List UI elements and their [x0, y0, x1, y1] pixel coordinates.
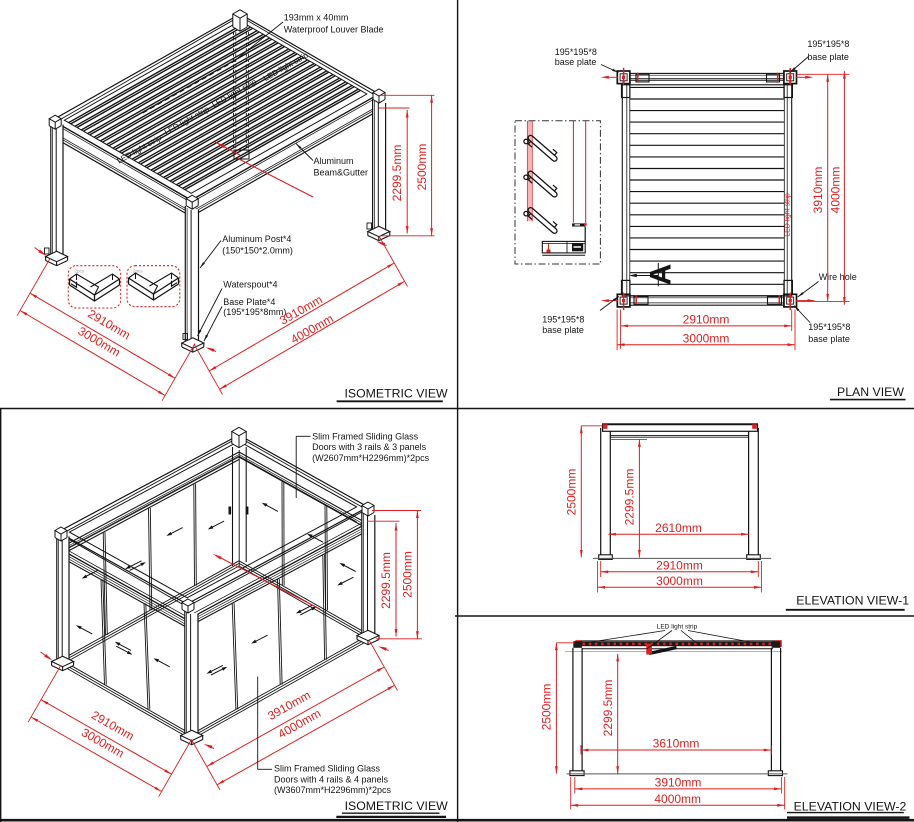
- svg-text:Waterproof Louver Blade: Waterproof Louver Blade: [284, 25, 384, 35]
- svg-text:2500mm: 2500mm: [401, 551, 415, 598]
- svg-text:2500mm: 2500mm: [540, 684, 554, 731]
- svg-text:2500mm: 2500mm: [565, 469, 579, 516]
- svg-text:Base Plate*4: Base Plate*4: [223, 297, 275, 307]
- svg-text:195*195*8: 195*195*8: [807, 39, 849, 49]
- svg-text:3000mm: 3000mm: [683, 332, 730, 346]
- svg-text:195*195*8: 195*195*8: [555, 47, 597, 57]
- svg-text:2pcs: 2pcs: [133, 269, 143, 274]
- svg-text:LED light strip: LED light strip: [784, 193, 791, 237]
- svg-text:3000mm: 3000mm: [656, 574, 703, 588]
- svg-text:3910mm: 3910mm: [811, 167, 825, 214]
- svg-text:(W3607mm*H2296mm)*2pcs: (W3607mm*H2296mm)*2pcs: [274, 785, 392, 795]
- svg-text:2500mm: 2500mm: [415, 144, 429, 191]
- svg-text:(150*150*2.0mm): (150*150*2.0mm): [222, 246, 293, 256]
- svg-text:Slim Framed Sliding Glass: Slim Framed Sliding Glass: [312, 432, 419, 442]
- svg-text:2299.5mm: 2299.5mm: [601, 680, 615, 737]
- svg-text:Doors with 4 rails & 4 panels: Doors with 4 rails & 4 panels: [274, 774, 389, 784]
- svg-text:195*195*8: 195*195*8: [808, 322, 850, 332]
- svg-text:193mm x 40mm: 193mm x 40mm: [284, 13, 349, 23]
- svg-text:2pcs: 2pcs: [75, 269, 85, 274]
- svg-text:2299.5mm: 2299.5mm: [623, 469, 637, 526]
- svg-text:4000mm: 4000mm: [829, 167, 843, 214]
- svg-text:PLAN VIEW: PLAN VIEW: [837, 385, 904, 399]
- svg-text:ELEVATION VIEW-2: ELEVATION VIEW-2: [794, 799, 907, 813]
- svg-text:A: A: [645, 264, 678, 286]
- svg-text:ISOMETRIC VIEW: ISOMETRIC VIEW: [345, 799, 449, 813]
- svg-text:LED light strip: LED light strip: [657, 623, 698, 630]
- svg-text:Wire hole: Wire hole: [819, 272, 857, 282]
- svg-text:base plate: base plate: [542, 325, 584, 335]
- svg-text:Aluminum Post*4: Aluminum Post*4: [222, 234, 291, 244]
- svg-text:base plate: base plate: [808, 334, 850, 344]
- svg-text:base plate: base plate: [555, 57, 597, 67]
- svg-text:3610mm: 3610mm: [653, 737, 700, 751]
- svg-text:2299.5mm: 2299.5mm: [379, 552, 393, 609]
- svg-text:2910mm: 2910mm: [656, 558, 703, 572]
- svg-text:Doors with 3 rails & 3 panels: Doors with 3 rails & 3 panels: [312, 442, 427, 452]
- svg-text:(W2607mm*H2296mm)*2pcs: (W2607mm*H2296mm)*2pcs: [312, 453, 430, 463]
- svg-text:Waterspout*4: Waterspout*4: [223, 280, 277, 290]
- svg-text:2910mm: 2910mm: [683, 313, 730, 327]
- svg-text:195*195*8: 195*195*8: [542, 315, 584, 325]
- svg-text:Slim Framed Sliding Glass: Slim Framed Sliding Glass: [274, 764, 381, 774]
- svg-text:Beam&Gutter: Beam&Gutter: [314, 168, 369, 178]
- svg-text:Aluminum: Aluminum: [314, 156, 354, 166]
- svg-text:base plate: base plate: [807, 52, 849, 62]
- svg-text:4000mm: 4000mm: [654, 792, 701, 806]
- svg-text:3910mm: 3910mm: [655, 775, 702, 789]
- svg-text:2299.5mm: 2299.5mm: [390, 145, 404, 202]
- svg-text:2610mm: 2610mm: [655, 521, 702, 535]
- svg-text:ELEVATION VIEW-1: ELEVATION VIEW-1: [796, 593, 909, 607]
- svg-text:ISOMETRIC VIEW: ISOMETRIC VIEW: [345, 386, 449, 400]
